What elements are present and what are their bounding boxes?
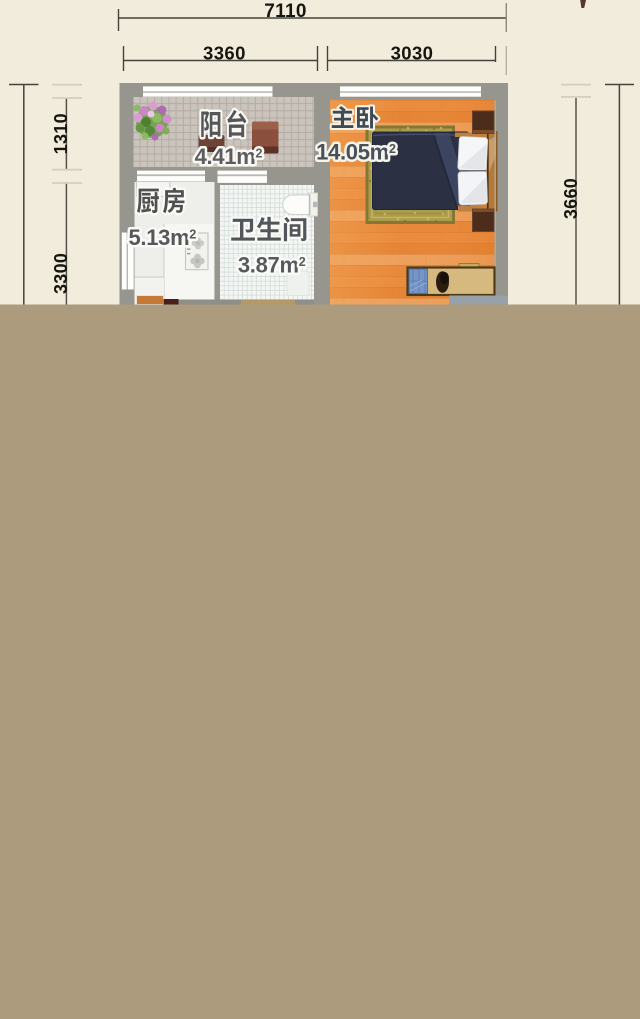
svg-text:1310: 1310 (51, 113, 71, 154)
svg-text:3300: 3300 (51, 253, 71, 294)
svg-text:3660: 3660 (561, 178, 581, 219)
svg-text:4.41m2: 4.41m2 (195, 144, 263, 169)
svg-text:3030: 3030 (391, 43, 434, 64)
svg-text:3.87m2: 3.87m2 (238, 253, 306, 278)
svg-text:5.13m2: 5.13m2 (128, 225, 196, 250)
svg-text:14.05m2: 14.05m2 (316, 140, 396, 165)
svg-text:3360: 3360 (203, 43, 246, 64)
svg-text:7110: 7110 (264, 1, 306, 22)
